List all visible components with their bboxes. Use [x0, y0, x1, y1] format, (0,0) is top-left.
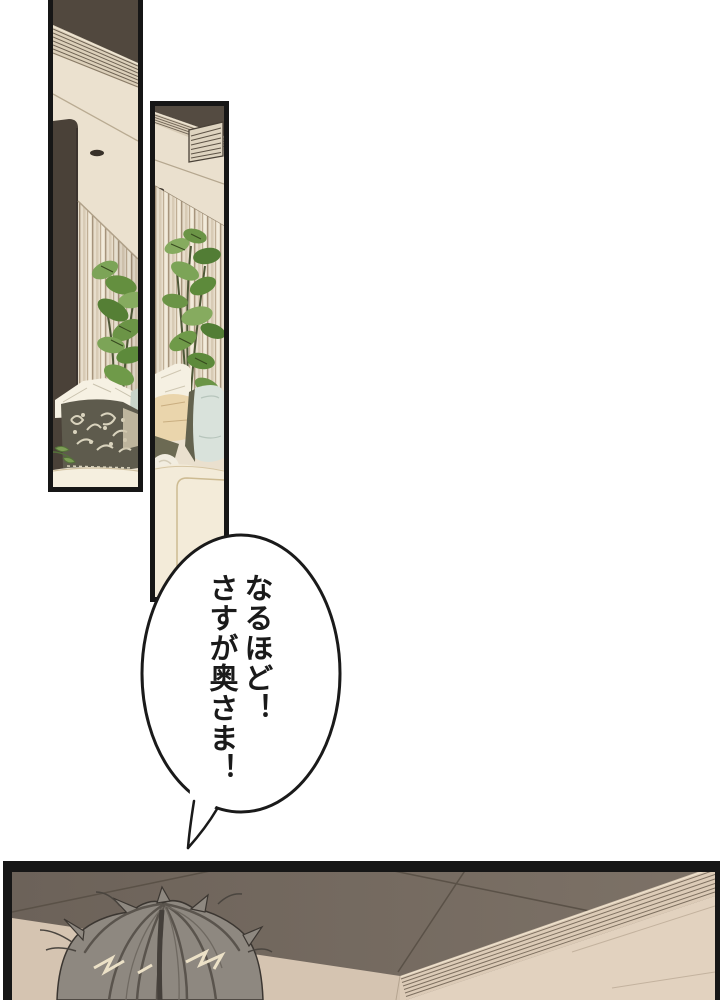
comic-panel-1: [48, 0, 143, 492]
speech-line-1: なるほど！: [239, 573, 274, 803]
manga-page: なるほど！ さすが奥さま！: [0, 0, 720, 1000]
sofa: [53, 467, 138, 487]
speech-bubble-text: なるほど！ さすが奥さま！: [204, 573, 274, 803]
comic-panel-3: [3, 861, 720, 1000]
panel-3-scene: [12, 872, 715, 1000]
speech-line-2: さすが奥さま！: [204, 573, 239, 803]
panel-2-scene: [155, 106, 224, 597]
panel-1-scene: [53, 0, 138, 487]
hair-part: [159, 910, 162, 1000]
recessed-light: [90, 150, 104, 156]
